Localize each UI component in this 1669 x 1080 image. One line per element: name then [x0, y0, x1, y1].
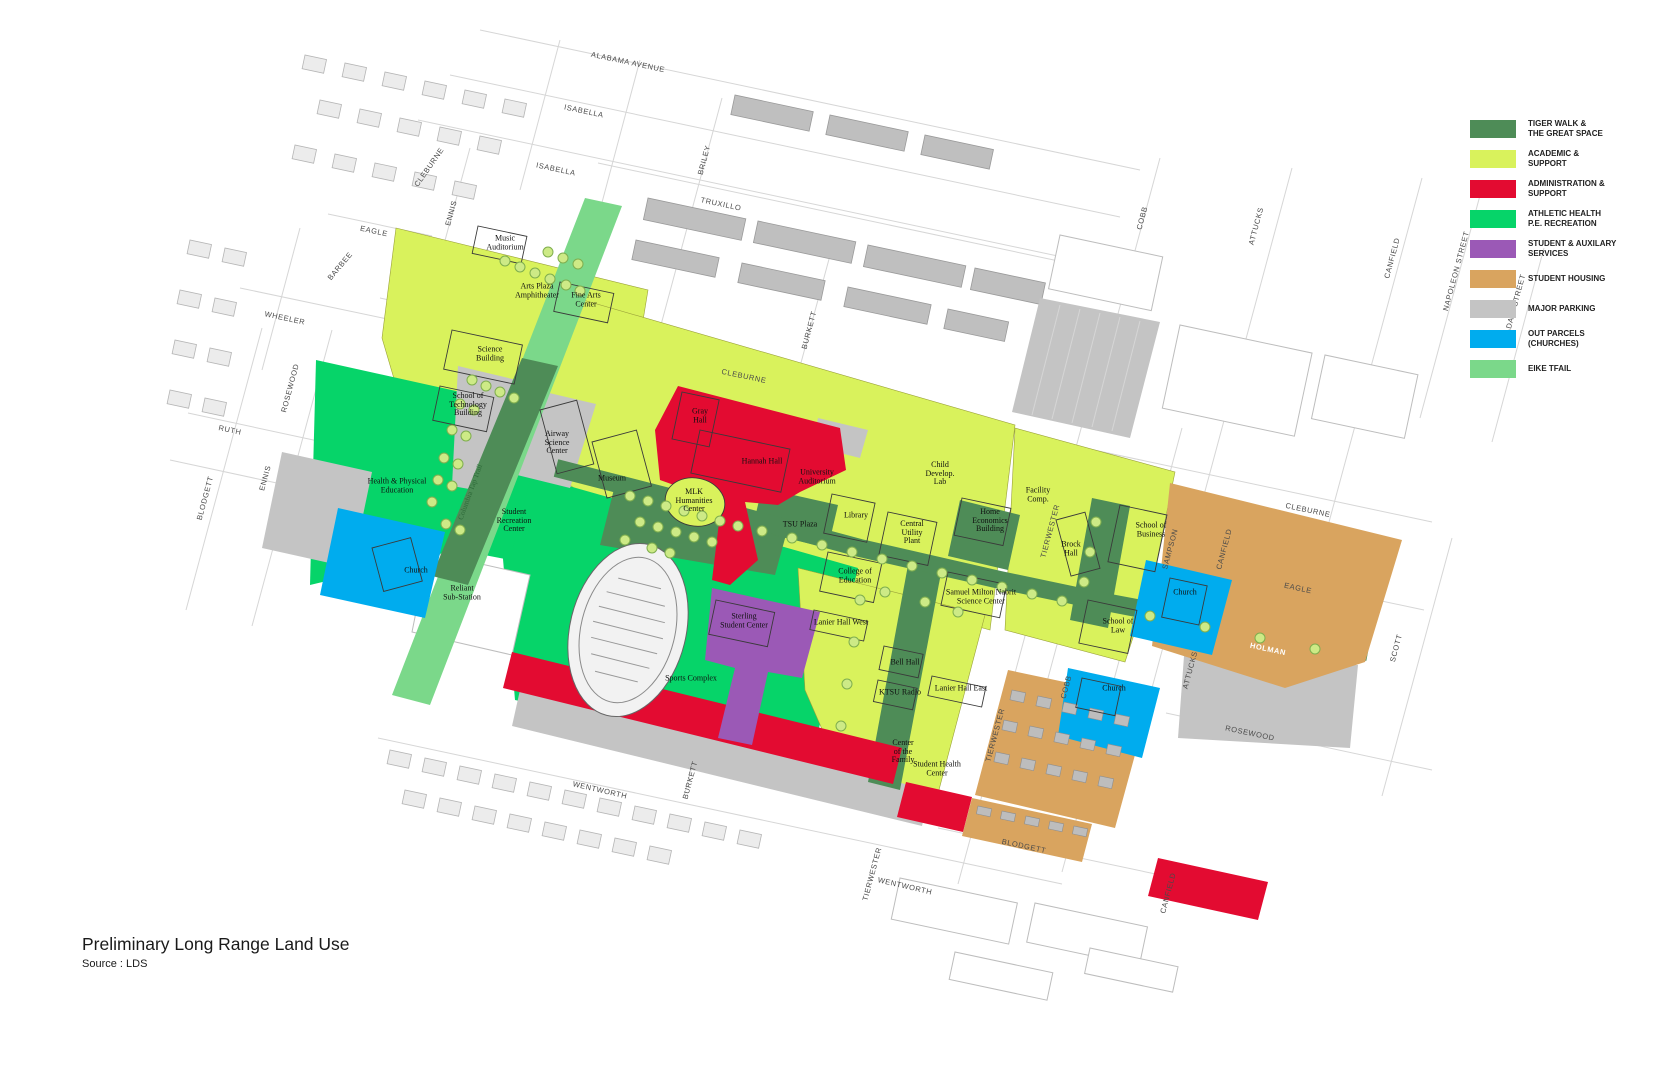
- legend-item: MAJOR PARKING: [1470, 300, 1616, 318]
- legend-label: OUT PARCELS (CHURCHES): [1528, 329, 1585, 349]
- legend-label: ATHLETIC HEALTH P.E. RECREATION: [1528, 209, 1601, 229]
- legend-item: EIKE TFAIL: [1470, 360, 1616, 378]
- legend-label: STUDENT HOUSING: [1528, 274, 1605, 284]
- legend-item: ATHLETIC HEALTH P.E. RECREATION: [1470, 210, 1616, 228]
- legend-swatch-bike-trail: [1470, 360, 1516, 378]
- legend-item: OUT PARCELS (CHURCHES): [1470, 330, 1616, 348]
- legend-label: STUDENT & AUXILARY SERVICES: [1528, 239, 1616, 259]
- legend: TIGER WALK & THE GREAT SPACE ACADEMIC & …: [1470, 120, 1616, 390]
- legend-item: TIGER WALK & THE GREAT SPACE: [1470, 120, 1616, 138]
- legend-item: ACADEMIC & SUPPORT: [1470, 150, 1616, 168]
- page-title: Preliminary Long Range Land Use: [82, 934, 350, 955]
- legend-swatch-student-services: [1470, 240, 1516, 258]
- admin-small-block: [897, 782, 972, 832]
- page-source: Source : LDS: [82, 958, 350, 970]
- legend-swatch-academic: [1470, 150, 1516, 168]
- legend-swatch-student-housing: [1470, 270, 1516, 288]
- legend-label: MAJOR PARKING: [1528, 304, 1595, 314]
- land-use-plan-page: { "page": { "title": "Preliminary Long R…: [0, 0, 1669, 1080]
- legend-item: STUDENT HOUSING: [1470, 270, 1616, 288]
- legend-swatch-tiger-walk: [1470, 120, 1516, 138]
- legend-swatch-administration: [1470, 180, 1516, 198]
- legend-swatch-athletic: [1470, 210, 1516, 228]
- legend-label: ACADEMIC & SUPPORT: [1528, 149, 1579, 169]
- legend-item: ADMINISTRATION & SUPPORT: [1470, 180, 1616, 198]
- legend-swatch-out-parcels: [1470, 330, 1516, 348]
- legend-label: TIGER WALK & THE GREAT SPACE: [1528, 119, 1603, 139]
- legend-label: EIKE TFAIL: [1528, 364, 1571, 374]
- legend-label: ADMINISTRATION & SUPPORT: [1528, 179, 1605, 199]
- legend-swatch-parking: [1470, 300, 1516, 318]
- title-block: Preliminary Long Range Land Use Source :…: [82, 934, 350, 970]
- legend-item: STUDENT & AUXILARY SERVICES: [1470, 240, 1616, 258]
- campus-map-canvas: [0, 0, 1669, 1080]
